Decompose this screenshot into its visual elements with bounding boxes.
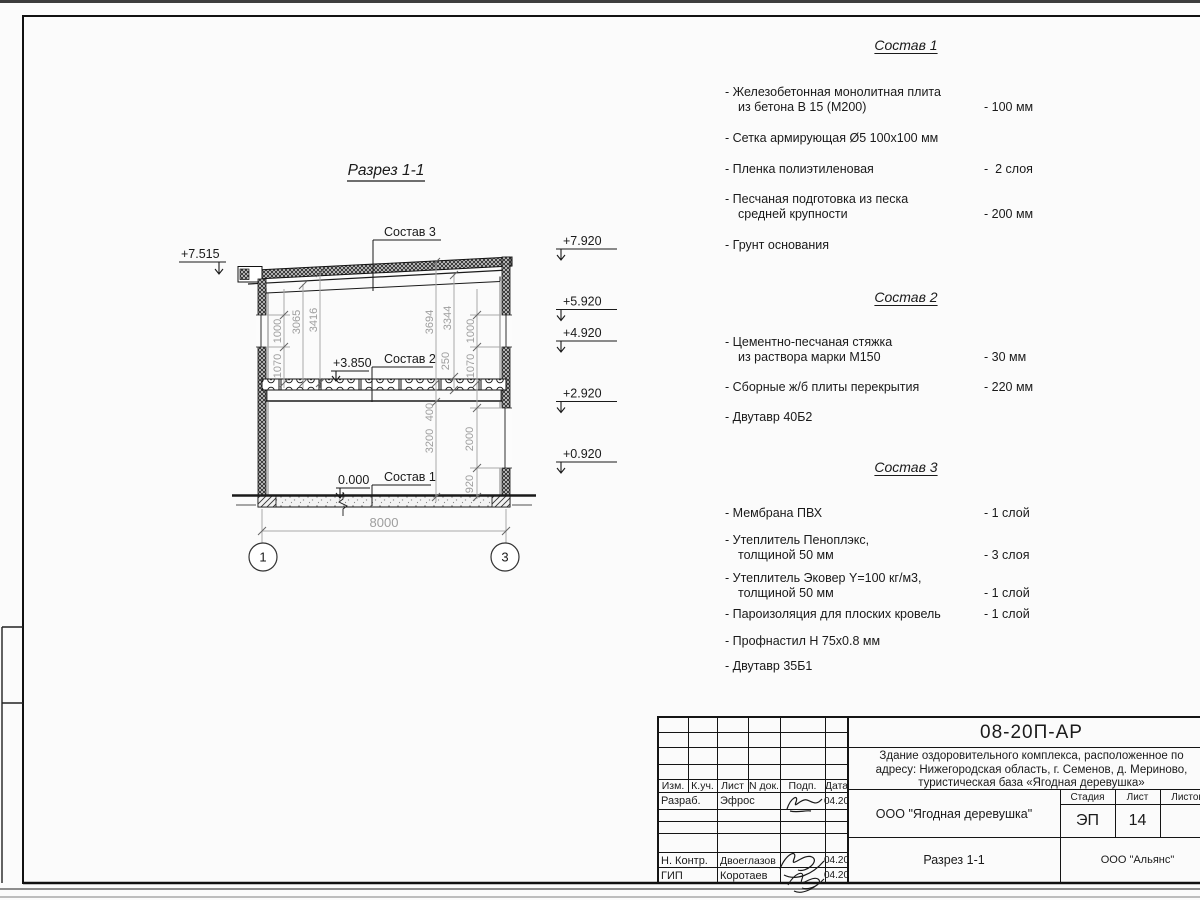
elev-right-1: +7.920: [563, 234, 602, 248]
spec-value: - 3 слоя: [984, 548, 1029, 563]
spec-value: - 2 слоя: [984, 162, 1033, 177]
spec-value: - 30 мм: [984, 350, 1026, 365]
row-gip-role: ГИП: [661, 869, 716, 882]
col-kuch: К.уч.: [688, 780, 717, 792]
elev-right-4: +2.920: [563, 387, 602, 401]
dim-3416: 3416: [308, 308, 320, 332]
elev-mark-r1: [556, 249, 617, 260]
row-gip-name: Коротаев: [720, 869, 780, 882]
elev-left-eaves: +7.515: [181, 247, 220, 261]
dim-3344: 3344: [442, 306, 454, 330]
filing-margin-marks: [2, 627, 23, 883]
dim-l-win: 1000: [272, 319, 284, 343]
row-nkontr-name: Двоеглазов: [720, 854, 782, 867]
spec3-item3: - Утеплитель Эковер Y=100 кг/м3, толщино…: [725, 571, 1070, 601]
label-sostav3: Состав 3: [384, 225, 436, 239]
company-name: ООО "Альянс": [1060, 838, 1200, 882]
left-footing: [258, 496, 276, 507]
view-title-text: Разрез 1-1: [348, 162, 425, 179]
spec-value: - 1 слой: [984, 506, 1030, 521]
spec3-item4: - Пароизоляция для плоских кровель - 1 с…: [725, 607, 1070, 622]
spec2-item1: - Цементно-песчаная стяжка из раствора м…: [725, 335, 1070, 365]
spec2-item3: - Двутавр 40Б2: [725, 410, 1070, 425]
spec1-item1: - Железобетонная монолитная плита из бет…: [725, 85, 1070, 115]
elev-mark-r2: [556, 310, 617, 321]
doc-number: 08-20П-АР: [848, 718, 1200, 747]
col-ndoc: N док.: [748, 780, 780, 792]
elev-mark-r4: [556, 402, 617, 413]
elev-floor0: 0.000: [338, 473, 369, 487]
dim-8000: 8000: [370, 515, 399, 530]
left-upper-window: [257, 315, 268, 347]
label-sostav2: Состав 2: [384, 352, 436, 366]
signature-nkontr-gip: [774, 845, 832, 893]
label-sostav1: Состав 1: [384, 470, 436, 484]
spec3-item2: - Утеплитель Пеноплэкс, толщиной 50 мм -…: [725, 533, 1070, 563]
row-razrab-role: Разраб.: [661, 794, 716, 808]
spec-value: - 1 слой: [984, 607, 1030, 622]
roof: [238, 257, 512, 293]
dim-3065: 3065: [291, 310, 303, 334]
leaders: [372, 240, 441, 506]
spec2-item2: - Сборные ж/б плиты перекрытия - 220 мм: [725, 380, 1070, 395]
spec1-title: Состав 1: [806, 37, 1006, 53]
axis-bubbles: 1 3: [249, 543, 519, 571]
spec-value: - 1 слой: [984, 586, 1030, 601]
spec-value: - 100 мм: [984, 100, 1033, 115]
spec3-title: Состав 3: [806, 459, 1006, 475]
elev-mark-r5: [556, 462, 617, 473]
spec1-item3: - Пленка полиэтиленовая - 2 слоя: [725, 162, 1070, 177]
sheets-label: Листов: [1160, 790, 1200, 804]
elev-floor2: +3.850: [333, 356, 372, 370]
dim-250: 250: [440, 352, 452, 370]
view-title: Разрез 1-1: [347, 162, 425, 181]
dim-400: 400: [424, 403, 436, 421]
dim-920: 920: [464, 475, 476, 493]
sheet-title: Разрез 1-1: [848, 838, 1060, 882]
project-description: Здание оздоровительного комплекса, распо…: [848, 750, 1200, 791]
dim-2000: 2000: [464, 427, 476, 451]
row-nkontr-role: Н. Контр.: [661, 854, 719, 867]
floor-slab: [262, 379, 506, 401]
drawing-sheet: Разрез 1-1: [0, 0, 1200, 900]
row-razrab-name: Эфрос: [720, 794, 778, 808]
dim-3200: 3200: [424, 429, 436, 453]
sheet-label: Лист: [1115, 790, 1160, 804]
axis-1-label: 1: [259, 550, 266, 565]
dim-3694: 3694: [424, 310, 436, 334]
col-list: Лист: [717, 780, 748, 792]
spec1-item2: - Сетка армирующая Ø5 100х100 мм: [725, 131, 1070, 146]
client-name: ООО "Ягодная деревушка": [848, 790, 1060, 837]
row-razrab-date: 04.20: [825, 794, 848, 808]
col-data: Дата: [825, 780, 848, 792]
dim-l-sill: 1070: [272, 354, 284, 378]
elev-mark-left: [179, 262, 226, 274]
elev-right-2: +5.920: [563, 295, 602, 309]
spec3-item5: - Профнастил Н 75х0.8 мм: [725, 634, 1070, 649]
ceiling-line: [266, 277, 500, 294]
spec1-item4: - Песчаная подготовка из песка средней к…: [725, 192, 1070, 222]
stage-value: ЭП: [1060, 805, 1115, 837]
stage-label: Стадия: [1060, 790, 1115, 804]
elev-right-3: +4.920: [563, 326, 602, 340]
right-lower-window: [501, 408, 512, 468]
dim-r-sill: 1070: [465, 354, 477, 378]
spec3-item6: - Двутавр 35Б1: [725, 659, 1070, 674]
spec2-title: Состав 2: [806, 289, 1006, 305]
spec-value: - 220 мм: [984, 380, 1033, 395]
dim-r-win: 1000: [465, 319, 477, 343]
axis-3-label: 3: [501, 550, 508, 565]
spec3-item1: - Мембрана ПВХ - 1 слой: [725, 506, 1070, 521]
signature-razrab: [781, 791, 826, 815]
right-footing: [492, 496, 510, 507]
sheet-value: 14: [1115, 805, 1160, 837]
elev-right-5: +0.920: [563, 447, 602, 461]
spec-value: - 200 мм: [984, 207, 1033, 222]
elev-mark-r3: [556, 341, 617, 352]
spec1-item5: - Грунт основания: [725, 238, 1070, 253]
ground-slab: [232, 492, 536, 516]
col-izm: Изм.: [658, 780, 688, 792]
